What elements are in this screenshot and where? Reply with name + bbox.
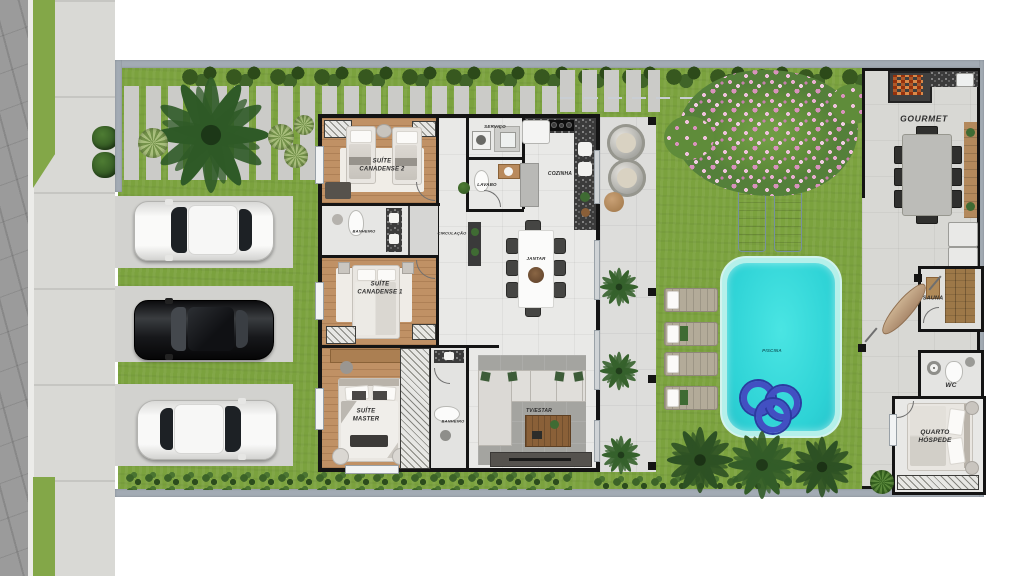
wall [322, 255, 437, 258]
car-mirror [238, 454, 246, 460]
car-roof [175, 405, 223, 453]
burner [566, 122, 572, 128]
round-sink [927, 361, 941, 375]
annex-wall [862, 68, 865, 198]
sofa-cushion [480, 371, 490, 381]
nightstand [965, 401, 979, 415]
pouf [604, 192, 624, 212]
tv-screen [509, 458, 571, 461]
double-bed [352, 265, 400, 339]
room-label-cozinha: COZINHA [548, 171, 572, 177]
fridge [522, 120, 550, 144]
window [315, 388, 324, 430]
room-label-suite-master: SUÍTE MASTER [353, 409, 380, 424]
bath-stool [332, 214, 343, 225]
wc-room [918, 350, 984, 400]
car-rear-window [239, 209, 252, 251]
sideboard-plant [471, 248, 479, 256]
shower-head [965, 357, 975, 367]
sliding-door [594, 150, 600, 204]
kitchen-sink [578, 162, 592, 176]
planter-plant [598, 350, 640, 392]
coffee-table [525, 415, 571, 447]
wall [466, 118, 469, 209]
sofa-cushion [507, 371, 517, 381]
basin [504, 167, 513, 176]
closet [326, 326, 356, 344]
master-closet [400, 348, 430, 469]
shower [408, 206, 438, 255]
toilet [945, 361, 963, 383]
tree-blossom-clump [664, 116, 714, 160]
laundry-sink [500, 132, 516, 148]
room-label-wc: WC [945, 382, 956, 390]
bed-pillow [350, 130, 372, 143]
sun-lounger [664, 322, 718, 346]
kitchen-sink [578, 142, 592, 156]
room-label-jantar: JANTAR [526, 256, 545, 262]
gourmet-counter [930, 71, 978, 87]
counter-plant [966, 202, 975, 211]
dining-chair [553, 238, 566, 254]
room-label-servico: SERVIÇO [484, 124, 506, 130]
round-bush [284, 144, 308, 168]
pool [722, 258, 840, 436]
toilet [474, 170, 489, 192]
wall [466, 157, 524, 160]
sauna-benches [945, 269, 975, 323]
sink [389, 213, 399, 223]
window [315, 146, 324, 184]
bed-pillow [357, 269, 376, 281]
egg-chair-cushion [616, 133, 636, 153]
wall [322, 345, 468, 348]
deck-post [648, 462, 656, 470]
table-tray [532, 431, 542, 439]
closet [897, 475, 979, 490]
nightstand [965, 461, 979, 475]
car-windshield [171, 307, 186, 351]
hammock-post [858, 344, 866, 352]
car-roof [189, 206, 237, 254]
palm-tree [148, 72, 274, 198]
car-mirror [165, 199, 173, 205]
nightstand [402, 262, 414, 274]
sidewalk-grass-strip-bottom [33, 477, 55, 576]
sun-lounger [664, 288, 718, 312]
car-windshield [225, 406, 241, 452]
gourmet-wood-counter [964, 122, 977, 218]
sun-lounger [664, 352, 718, 376]
lounger-pillow [667, 325, 679, 343]
desk [330, 349, 406, 363]
dresser [325, 182, 351, 199]
floor-plan: SUÍTE CANADENSE 2 BANHEIRO CIRCULAÇÃO SU… [0, 0, 1024, 576]
tv-console [490, 452, 592, 467]
dining-chair [553, 282, 566, 298]
door-swing [923, 307, 939, 323]
street-asphalt [0, 0, 28, 576]
deck-post [648, 117, 656, 125]
egg-chair-cushion [617, 168, 637, 188]
sun-lounger [664, 386, 718, 410]
car-rear-window [160, 408, 173, 450]
towel [680, 390, 688, 405]
sliding-door [594, 330, 600, 390]
sideboard-plant [471, 228, 479, 236]
hedge-row-bottom [124, 472, 572, 490]
nightstand [376, 124, 392, 138]
garden-pavers [560, 70, 660, 112]
round-bush [138, 128, 168, 158]
bed-cushion [373, 391, 387, 400]
car-mirror [165, 255, 173, 261]
washer-door [476, 135, 486, 145]
bed-pillow [396, 131, 418, 144]
burner [551, 122, 557, 128]
room-label-piscina: PISCINA [762, 348, 782, 354]
bbq-grill [888, 71, 932, 103]
round-bush [294, 115, 314, 135]
wall [469, 345, 499, 348]
tropical-shrub [786, 434, 858, 500]
bed-cushion [352, 391, 366, 400]
planter-plant [600, 434, 642, 476]
lounger-pillow [667, 291, 679, 309]
car-mirror [165, 354, 173, 360]
skewers [893, 75, 923, 95]
bed-bench [350, 435, 388, 447]
car-black-sedan [134, 300, 274, 360]
room-label-lavabo: LAVABO [477, 182, 497, 188]
closet [412, 324, 436, 340]
deck-post [648, 288, 656, 296]
fridge [948, 222, 978, 247]
laundry-counter [494, 126, 520, 152]
room-label-sauna: SAUNA [923, 296, 944, 303]
car-white-hatch [137, 400, 277, 460]
sofa-cushion [573, 371, 583, 381]
room-label-banheiro-master: BANHEIRO [442, 419, 465, 424]
sink [444, 352, 454, 360]
sink [389, 234, 399, 244]
cooktop [548, 120, 574, 131]
guest-room [892, 396, 986, 495]
hammock-post [914, 274, 922, 282]
window [315, 282, 324, 320]
lavabo-counter [498, 164, 520, 179]
planter-plant [598, 266, 640, 308]
counter-plant [580, 192, 590, 202]
washing-machine [472, 131, 491, 150]
bed-pillow [377, 269, 396, 281]
gourmet-sink [956, 73, 974, 87]
room-label-banheiro-suites: BANHEIRO [353, 229, 376, 234]
wall [466, 345, 469, 468]
gourmet-table [902, 134, 952, 216]
room-label-tv-estar: TV/ESTAR [526, 408, 552, 414]
counter-bowl [581, 208, 590, 217]
car-mirror [238, 398, 246, 404]
kitchen-counter-side [574, 118, 596, 230]
room-label-suite-canadense-1: SUÍTE CANADENSE 1 [357, 282, 402, 297]
dining-table [518, 230, 554, 308]
burner [559, 123, 564, 128]
window [889, 414, 897, 446]
headboard [339, 379, 399, 386]
egg-chair [607, 124, 645, 162]
room-label-gourmet: GOURMET [900, 114, 948, 125]
sofa-chaise [478, 370, 512, 446]
single-bed [392, 127, 422, 185]
car-rear-window [236, 310, 248, 348]
boundary-wall-left [115, 60, 122, 192]
car-white-suv [134, 201, 274, 261]
wall [466, 209, 524, 212]
bath-vanity [386, 208, 402, 252]
sliding-door [594, 240, 600, 300]
counter-plant [966, 128, 975, 137]
room-label-quarto-hospede: QUARTO HÓSPEDE [918, 429, 951, 445]
nightstand [338, 262, 350, 274]
lounger-pillow [667, 389, 679, 407]
window [345, 465, 399, 474]
pouf [332, 448, 349, 465]
room-label-circulacao: CIRCULAÇÃO [438, 231, 467, 236]
bath-vanity [434, 350, 464, 363]
deck-post [648, 375, 656, 383]
dining-chair [553, 260, 566, 276]
kitchen-island [520, 163, 539, 207]
corridor-plant [458, 182, 470, 194]
shower-head [440, 430, 451, 441]
pool-water [727, 263, 835, 431]
towel [680, 326, 688, 341]
door-swing [484, 190, 501, 207]
desk-chair [340, 361, 353, 374]
single-bed [346, 126, 376, 184]
room-label-suite-canadense-2: SUÍTE CANADENSE 2 [359, 159, 404, 174]
centerpiece [528, 267, 544, 283]
potted-plant [870, 470, 894, 494]
table-plant [550, 420, 559, 429]
lounger-pillow [667, 355, 679, 373]
car-windshield [171, 207, 187, 253]
car-mirror [165, 298, 173, 304]
sliding-door [594, 420, 600, 462]
sideboard [468, 222, 481, 266]
sofa-cushion [554, 371, 564, 381]
car-roof [188, 307, 234, 351]
